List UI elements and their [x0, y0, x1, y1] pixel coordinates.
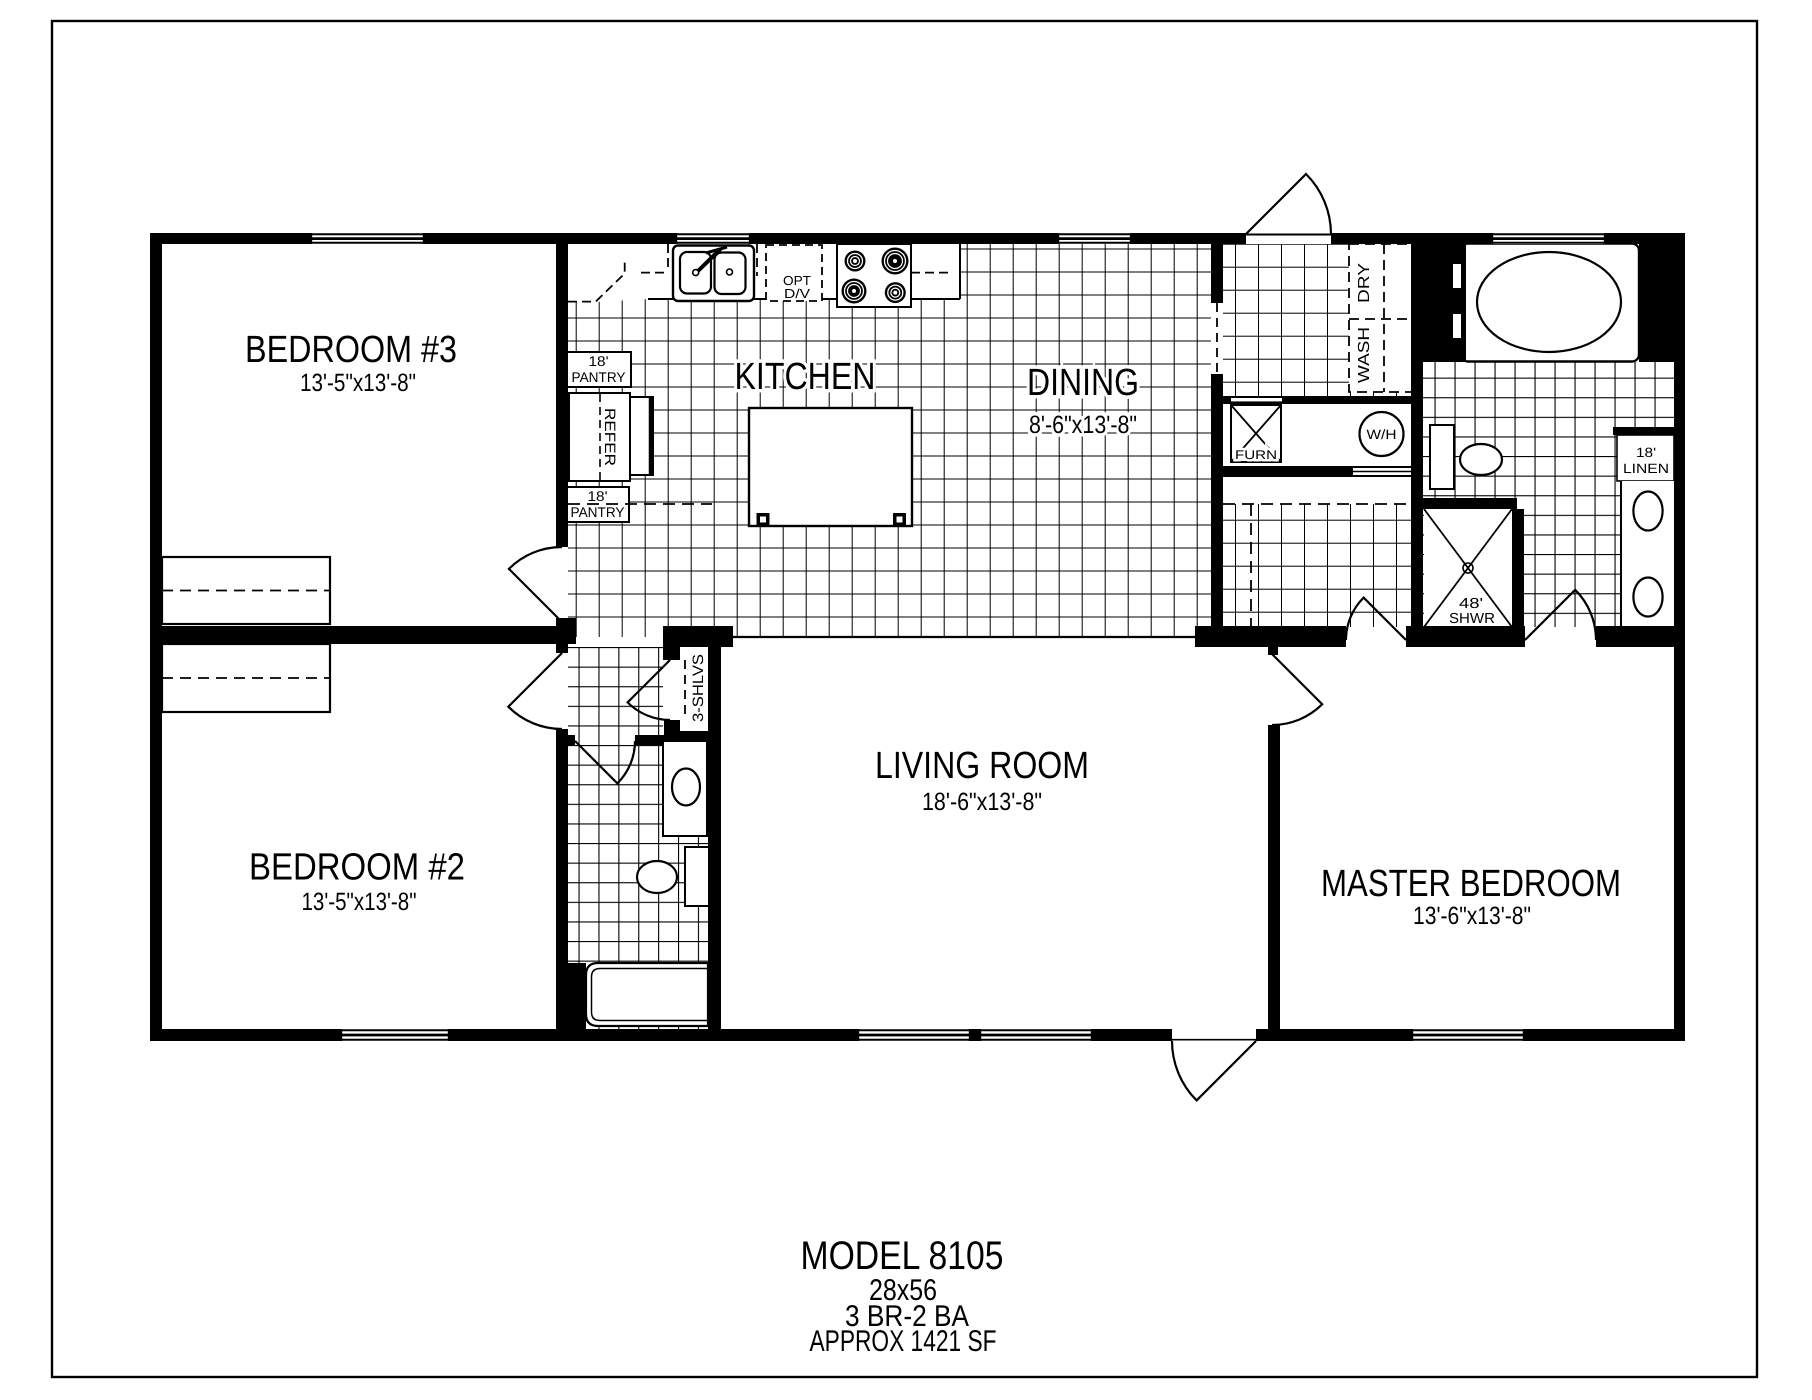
svg-text:48': 48' — [1459, 596, 1483, 612]
svg-text:REFER: REFER — [601, 408, 618, 466]
svg-text:BEDROOM #3: BEDROOM #3 — [245, 329, 457, 371]
svg-text:KITCHEN: KITCHEN — [735, 356, 876, 398]
svg-text:18'-6"x13'-8": 18'-6"x13'-8" — [922, 788, 1042, 816]
svg-text:13'-5"x13'-8": 13'-5"x13'-8" — [302, 888, 417, 916]
svg-text:D/V: D/V — [784, 286, 810, 301]
svg-text:18': 18' — [589, 353, 609, 369]
svg-text:LINEN: LINEN — [1623, 461, 1669, 476]
svg-text:BEDROOM #2: BEDROOM #2 — [249, 847, 465, 889]
svg-text:18': 18' — [1636, 445, 1656, 460]
svg-text:DINING: DINING — [1027, 362, 1139, 404]
svg-text:PANTRY: PANTRY — [572, 369, 627, 385]
svg-text:APPROX 1421 SF: APPROX 1421 SF — [810, 1325, 997, 1358]
svg-text:W/H: W/H — [1367, 427, 1397, 442]
svg-text:WASH: WASH — [1356, 327, 1373, 383]
svg-text:MODEL 8105: MODEL 8105 — [801, 1234, 1004, 1278]
svg-text:18': 18' — [588, 488, 608, 504]
svg-text:FURN: FURN — [1235, 448, 1277, 462]
svg-text:SHWR: SHWR — [1449, 611, 1495, 627]
svg-text:DRY: DRY — [1356, 263, 1373, 303]
svg-text:13'-6"x13'-8": 13'-6"x13'-8" — [1413, 902, 1531, 930]
svg-text:13'-5"x13'-8": 13'-5"x13'-8" — [300, 369, 416, 397]
svg-text:MASTER BEDROOM: MASTER BEDROOM — [1321, 863, 1621, 905]
svg-text:3-SHLVS: 3-SHLVS — [690, 654, 707, 722]
svg-text:8'-6"x13'-8": 8'-6"x13'-8" — [1029, 411, 1137, 439]
svg-text:LIVING ROOM: LIVING ROOM — [875, 745, 1089, 787]
svg-text:PANTRY: PANTRY — [571, 504, 626, 520]
